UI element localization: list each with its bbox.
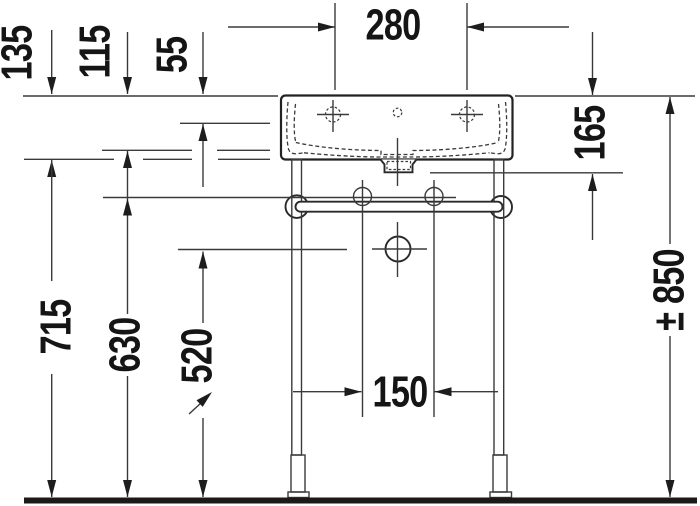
dim-label-280: 280: [366, 0, 421, 49]
dim-label-55: 55: [147, 37, 196, 74]
console-frame: [286, 160, 513, 498]
dim-label-135: 135: [0, 26, 42, 81]
floor-line: [24, 498, 697, 504]
washbasin: [281, 96, 513, 160]
foot-plate-left: [288, 492, 309, 498]
foot-left: [291, 455, 305, 492]
drain-hole: [372, 222, 427, 277]
dim-label-115: 115: [70, 25, 119, 78]
foot-right: [493, 455, 507, 492]
dim-label-150: 150: [373, 367, 428, 416]
drawing-canvas: 135 115 55 280 165 715 630 520 150 ± 850: [0, 0, 700, 506]
dim-label-630: 630: [100, 318, 149, 373]
dim-label-165: 165: [565, 106, 614, 161]
dim-label-850: ± 850: [644, 249, 693, 331]
dimension-lines: [47, 23, 674, 498]
foot-plate-right: [490, 492, 512, 498]
towel-rail: [296, 202, 503, 212]
technical-drawing: 135 115 55 280 165 715 630 520 150 ± 850: [0, 0, 700, 506]
basin-outline: [281, 96, 513, 160]
dim-label-520: 520: [172, 329, 221, 384]
dim-label-715: 715: [31, 300, 80, 355]
